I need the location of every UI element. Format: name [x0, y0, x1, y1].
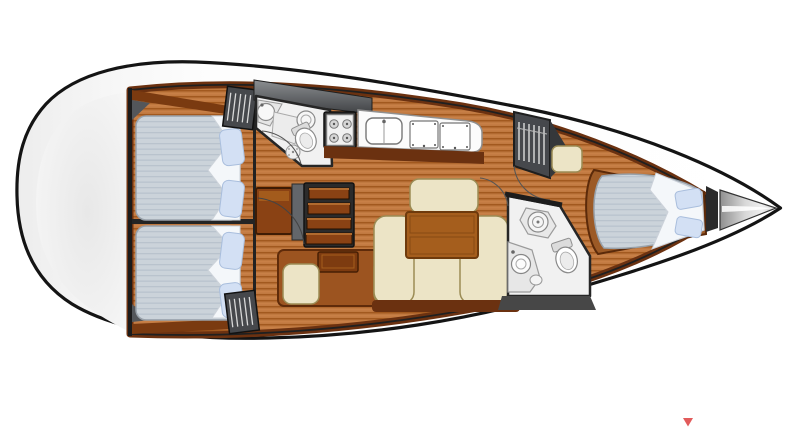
aft-cabin-bottom: [132, 226, 259, 334]
pillow: [219, 232, 245, 270]
bow-bulkhead: [706, 186, 718, 232]
aft-main-bulkhead: [128, 88, 132, 336]
floorplan-canvas: [0, 0, 800, 446]
steps-side-panel: [292, 184, 304, 240]
chart-table-top: [259, 191, 289, 201]
head-base-band: [498, 296, 596, 310]
shower-drain-dot: [537, 221, 540, 224]
pillow: [674, 188, 703, 210]
sink-bowl: [258, 104, 275, 121]
sink-bowl: [512, 255, 531, 274]
red-cursor-marker: [683, 418, 693, 427]
counter-lid: [440, 123, 470, 150]
nav-seat-cushion: [283, 264, 319, 304]
pillow: [674, 216, 703, 238]
sofa-base-trim: [372, 300, 520, 312]
faucet-dot: [382, 120, 386, 124]
hanging-locker: [223, 86, 258, 129]
pillow: [219, 180, 245, 218]
settee-cushion-upper: [410, 179, 478, 213]
counter-lid: [410, 121, 438, 148]
hanging-locker: [225, 290, 260, 333]
small-bowl: [530, 275, 542, 285]
faucet-dot: [260, 103, 263, 106]
fwd-cabin-cabinet: [552, 146, 582, 172]
faucet-dot: [511, 250, 515, 254]
saloon-table: [406, 212, 478, 258]
pillow: [219, 128, 245, 166]
yacht-floorplan-svg: [0, 0, 800, 446]
